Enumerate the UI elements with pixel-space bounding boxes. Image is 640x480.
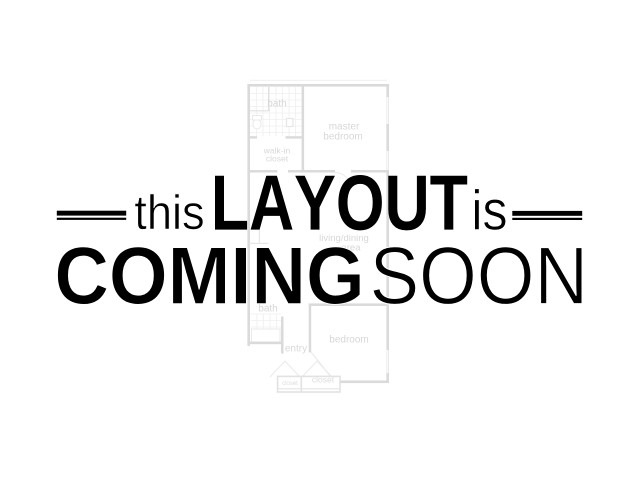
svg-text:closet: closet <box>312 375 335 385</box>
svg-text:closet: closet <box>282 381 298 387</box>
svg-text:bedroom: bedroom <box>323 132 362 143</box>
svg-text:bedroom: bedroom <box>329 335 368 346</box>
svg-text:entry: entry <box>285 344 307 355</box>
svg-text:closet: closet <box>266 154 289 164</box>
svg-text:bath: bath <box>258 304 277 315</box>
svg-text:bath: bath <box>267 99 286 110</box>
